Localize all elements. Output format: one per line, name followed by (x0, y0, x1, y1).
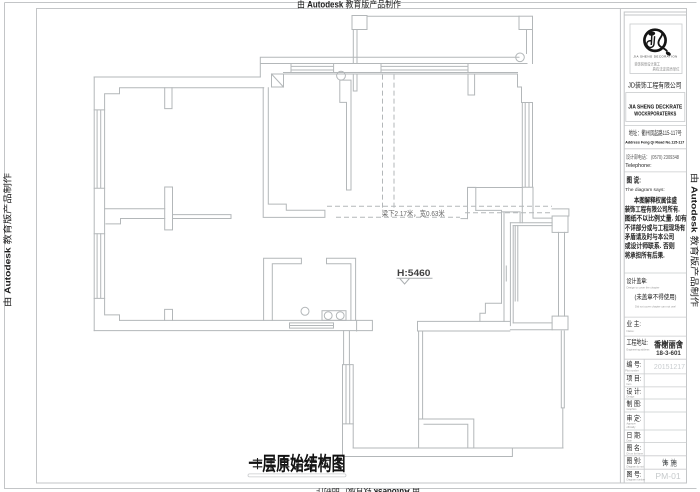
svg-text:图纸不以比例丈量. 如有: 图纸不以比例丈量. 如有 (625, 214, 687, 223)
svg-text:18-3-601: 18-3-601 (656, 350, 681, 357)
svg-text:Did not cover chapter can not: Did not cover chapter can not use! (635, 304, 676, 308)
svg-text:梁下2.17米，宽0.63米: 梁下2.17米，宽0.63米 (382, 209, 445, 218)
svg-text:JIA SHENG DECKRATE: JIA SHENG DECKRATE (628, 105, 683, 111)
svg-text:Item: Item (627, 383, 632, 386)
svg-text:业 主:: 业 主: (627, 319, 642, 328)
svg-text:Plot number: Plot number (625, 369, 639, 372)
svg-text:20151217: 20151217 (654, 364, 685, 371)
svg-text:设计盖章:: 设计盖章: (627, 276, 648, 285)
svg-text:由 Autodesk 教育版产品制作: 由 Autodesk 教育版产品制作 (297, 0, 401, 9)
svg-text:Diagram do not: Diagram do not (627, 466, 644, 469)
svg-text:本图解释权属佳盛: 本图解释权属佳盛 (634, 196, 677, 205)
svg-text:Design: Design (627, 396, 635, 399)
svg-text:The diagram says:: The diagram says: (625, 187, 664, 193)
svg-text:由 Autodesk 教育版产品制作: 由 Autodesk 教育版产品制作 (3, 172, 13, 307)
svg-text:项 目:: 项 目: (627, 375, 642, 383)
svg-text:Dir on for fame: Dir on for fame (627, 452, 644, 455)
svg-text:Address Feng Qi Road No.115-11: Address Feng Qi Road No.115-117 (625, 141, 684, 145)
svg-text:编 号:: 编 号: (627, 360, 642, 369)
svg-text:制 图:: 制 图: (627, 399, 642, 408)
svg-text:设计部电话： (0570) 2309348: 设计部电话： (0570) 2309348 (626, 153, 679, 161)
svg-text:JIA SHENG DECORATION: JIA SHENG DECORATION (633, 55, 677, 59)
svg-text:或设计师联系. 否则: 或设计师联系. 否则 (625, 241, 675, 250)
svg-text:Engineering address: Engineering address (627, 348, 651, 351)
svg-text:具有法定资质单位: 具有法定资质单位 (653, 65, 680, 72)
svg-text:图 说:: 图 说: (627, 176, 642, 185)
svg-text:设 计:: 设 计: (627, 387, 642, 396)
svg-text:PM-01: PM-01 (655, 471, 681, 481)
svg-text:审 定:: 审 定: (627, 414, 642, 423)
svg-text:JD装饰工程有限公司: JD装饰工程有限公司 (628, 81, 682, 90)
svg-text:矛盾请及时与本公司: 矛盾请及时与本公司 (624, 232, 674, 241)
svg-text:图 别:: 图 别: (627, 456, 642, 465)
svg-text:图 名:: 图 名: (627, 443, 642, 452)
svg-text:Name:: Name: (627, 329, 635, 333)
svg-text:Diagram number: Diagram number (627, 478, 646, 481)
svg-text:由 Autodesk 教育版产品制作: 由 Autodesk 教育版产品制作 (316, 487, 420, 492)
svg-text:WOCKRPORATERKS: WOCKRPORATERKS (634, 112, 677, 118)
svg-text:地址：衢州凤起路115-117号: 地址：衢州凤起路115-117号 (629, 128, 682, 137)
svg-text:Design to cover the chapter: Design to cover the chapter (627, 286, 660, 290)
svg-text:Telephone:: Telephone: (625, 163, 651, 169)
svg-text:日 期:: 日 期: (627, 432, 642, 440)
svg-text:将承担所有后果.: 将承担所有后果. (625, 250, 665, 259)
svg-text:装饰工程有限公司所有.: 装饰工程有限公司所有. (625, 204, 680, 213)
svg-text:一层原始结构图: 一层原始结构图 (249, 452, 346, 475)
svg-text:工程地址:: 工程地址: (627, 337, 649, 346)
svg-text:由 Autodesk 教育版产品制作: 由 Autodesk 教育版产品制作 (690, 173, 700, 308)
svg-text:Date: Date (627, 439, 633, 442)
svg-text:officially: officially (627, 426, 637, 429)
svg-text:不详部分或与工程现场有: 不详部分或与工程现场有 (625, 223, 686, 232)
svg-text:H:5460: H:5460 (397, 268, 431, 278)
svg-text:Graphics: Graphics (627, 408, 638, 411)
svg-text:(未盖章不得使用): (未盖章不得使用) (635, 292, 677, 301)
